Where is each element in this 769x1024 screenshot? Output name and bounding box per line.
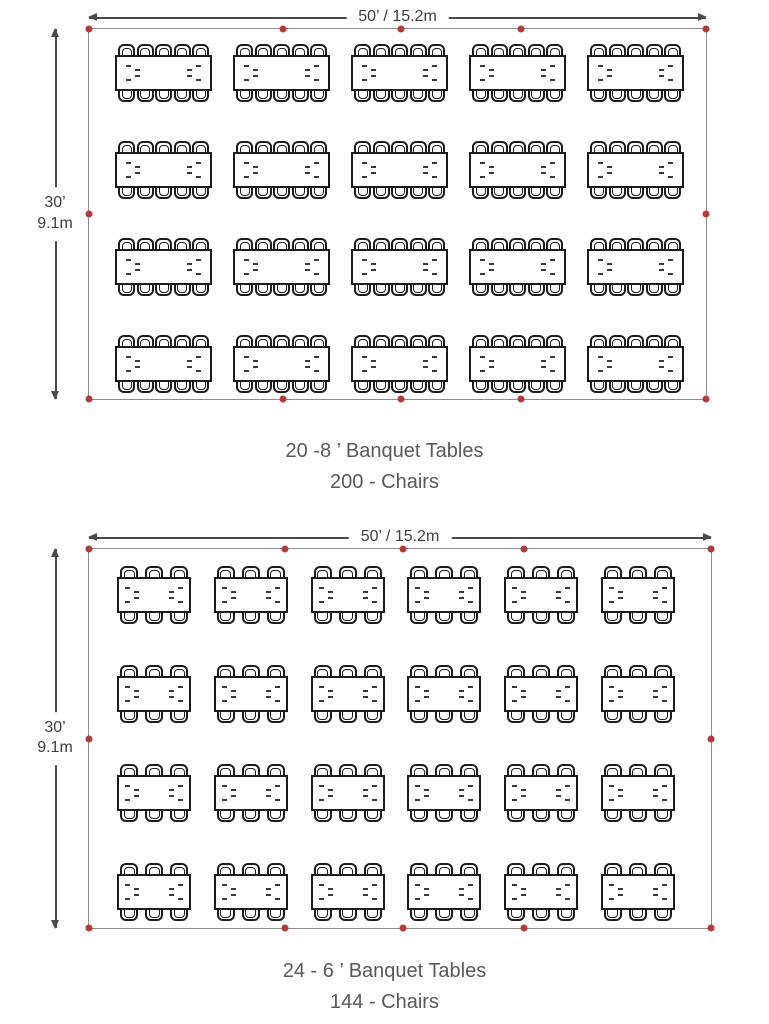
banquet-table-8ft bbox=[351, 335, 448, 393]
height-label-m: 9.1m bbox=[37, 740, 73, 757]
table-surface bbox=[351, 152, 448, 188]
banquet-table-8ft bbox=[587, 141, 684, 199]
place-setting-marks bbox=[457, 585, 473, 605]
stake-dot bbox=[400, 925, 407, 932]
table-row bbox=[115, 238, 684, 296]
place-setting-marks bbox=[554, 585, 570, 605]
place-setting-marks bbox=[415, 783, 431, 803]
place-setting-marks bbox=[264, 585, 280, 605]
table-surface bbox=[469, 346, 566, 382]
height-label-m: 9.1m bbox=[37, 215, 73, 232]
place-setting-marks bbox=[303, 257, 319, 277]
stake-dot bbox=[521, 546, 528, 553]
width-dimension-line: 50’ / 15.2m bbox=[88, 529, 712, 545]
arrow-right-icon bbox=[703, 533, 712, 541]
table-surface bbox=[469, 152, 566, 188]
table-surface bbox=[587, 55, 684, 91]
table-surface bbox=[233, 55, 330, 91]
table-row bbox=[117, 665, 675, 723]
place-setting-marks bbox=[361, 783, 377, 803]
place-setting-marks bbox=[657, 354, 673, 374]
place-setting-marks bbox=[126, 257, 142, 277]
table-surface bbox=[117, 676, 191, 712]
place-setting-marks bbox=[303, 63, 319, 83]
place-setting-marks bbox=[244, 63, 260, 83]
table-surface bbox=[351, 249, 448, 285]
place-setting-marks bbox=[512, 684, 528, 704]
place-setting-marks bbox=[185, 354, 201, 374]
banquet-table-8ft bbox=[115, 141, 212, 199]
banquet-table-8ft bbox=[351, 238, 448, 296]
tent-outline bbox=[88, 548, 712, 929]
place-setting-marks bbox=[415, 882, 431, 902]
table-surface bbox=[407, 874, 481, 910]
place-setting-marks bbox=[167, 882, 183, 902]
place-setting-marks bbox=[598, 257, 614, 277]
banquet-table-8ft bbox=[587, 335, 684, 393]
place-setting-marks bbox=[185, 63, 201, 83]
banquet-table-8ft bbox=[351, 141, 448, 199]
table-surface bbox=[117, 874, 191, 910]
table-surface bbox=[407, 775, 481, 811]
place-setting-marks bbox=[598, 160, 614, 180]
table-row bbox=[115, 44, 684, 102]
place-setting-marks bbox=[222, 783, 238, 803]
place-setting-marks bbox=[651, 684, 667, 704]
place-setting-marks bbox=[421, 354, 437, 374]
place-setting-marks bbox=[651, 783, 667, 803]
stake-dot bbox=[521, 925, 528, 932]
table-surface bbox=[214, 676, 288, 712]
table-surface bbox=[601, 676, 675, 712]
tent-outline bbox=[88, 28, 707, 400]
place-setting-marks bbox=[361, 684, 377, 704]
banquet-table-8ft bbox=[115, 44, 212, 102]
place-setting-marks bbox=[319, 882, 335, 902]
place-setting-marks bbox=[303, 160, 319, 180]
table-surface bbox=[311, 874, 385, 910]
place-setting-marks bbox=[651, 585, 667, 605]
place-setting-marks bbox=[598, 63, 614, 83]
place-setting-marks bbox=[421, 257, 437, 277]
table-surface bbox=[351, 55, 448, 91]
banquet-table-6ft bbox=[311, 863, 385, 921]
place-setting-marks bbox=[244, 160, 260, 180]
place-setting-marks bbox=[457, 783, 473, 803]
caption-chairs: 144 - Chairs bbox=[0, 987, 769, 1018]
stake-dot bbox=[400, 546, 407, 553]
floor-plan-page: 50’ / 15.2m 30’ 9.1m 20 -8 ’ Banquet Tab… bbox=[0, 0, 769, 1024]
stake-dot bbox=[86, 396, 93, 403]
caption-tables: 24 - 6 ’ Banquet Tables bbox=[0, 956, 769, 987]
place-setting-marks bbox=[126, 63, 142, 83]
table-surface bbox=[214, 874, 288, 910]
banquet-table-8ft bbox=[587, 44, 684, 102]
table-surface bbox=[601, 775, 675, 811]
banquet-table-8ft bbox=[469, 335, 566, 393]
banquet-table-6ft bbox=[407, 863, 481, 921]
banquet-table-6ft bbox=[214, 566, 288, 624]
place-setting-marks bbox=[362, 354, 378, 374]
height-label: 30’ 9.1m bbox=[35, 187, 75, 241]
place-setting-marks bbox=[185, 257, 201, 277]
stake-dot bbox=[86, 26, 93, 33]
place-setting-marks bbox=[539, 354, 555, 374]
place-setting-marks bbox=[125, 585, 141, 605]
place-setting-marks bbox=[657, 160, 673, 180]
place-setting-marks bbox=[512, 882, 528, 902]
place-setting-marks bbox=[362, 160, 378, 180]
place-setting-marks bbox=[319, 585, 335, 605]
banquet-table-8ft bbox=[233, 141, 330, 199]
place-setting-marks bbox=[512, 585, 528, 605]
table-row bbox=[117, 863, 675, 921]
place-setting-marks bbox=[361, 882, 377, 902]
table-surface bbox=[115, 346, 212, 382]
table-surface bbox=[469, 249, 566, 285]
table-surface bbox=[601, 874, 675, 910]
table-surface bbox=[504, 874, 578, 910]
stake-dot bbox=[397, 396, 404, 403]
place-setting-marks bbox=[480, 63, 496, 83]
table-surface bbox=[601, 577, 675, 613]
banquet-table-8ft bbox=[351, 44, 448, 102]
place-setting-marks bbox=[657, 63, 673, 83]
table-surface bbox=[351, 346, 448, 382]
stake-dot bbox=[703, 211, 710, 218]
place-setting-marks bbox=[480, 257, 496, 277]
place-setting-marks bbox=[185, 160, 201, 180]
table-surface bbox=[407, 676, 481, 712]
table-surface bbox=[504, 775, 578, 811]
table-surface bbox=[115, 152, 212, 188]
table-surface bbox=[311, 577, 385, 613]
place-setting-marks bbox=[421, 160, 437, 180]
banquet-table-8ft bbox=[587, 238, 684, 296]
tables-grid bbox=[117, 566, 675, 921]
table-surface bbox=[311, 676, 385, 712]
stake-dot bbox=[703, 26, 710, 33]
place-setting-marks bbox=[319, 783, 335, 803]
table-surface bbox=[233, 249, 330, 285]
place-setting-marks bbox=[167, 684, 183, 704]
place-setting-marks bbox=[457, 882, 473, 902]
place-setting-marks bbox=[264, 684, 280, 704]
table-surface bbox=[214, 775, 288, 811]
table-row bbox=[115, 141, 684, 199]
place-setting-marks bbox=[609, 783, 625, 803]
banquet-table-8ft bbox=[469, 44, 566, 102]
place-setting-marks bbox=[480, 160, 496, 180]
place-setting-marks bbox=[125, 882, 141, 902]
place-setting-marks bbox=[609, 882, 625, 902]
place-setting-marks bbox=[126, 354, 142, 374]
height-dimension-line: 30’ 9.1m bbox=[47, 548, 63, 929]
stake-dot bbox=[281, 925, 288, 932]
table-row bbox=[117, 764, 675, 822]
place-setting-marks bbox=[415, 684, 431, 704]
table-surface bbox=[587, 346, 684, 382]
banquet-table-8ft bbox=[233, 238, 330, 296]
stake-dot bbox=[703, 396, 710, 403]
banquet-table-8ft bbox=[469, 141, 566, 199]
place-setting-marks bbox=[361, 585, 377, 605]
table-surface bbox=[504, 676, 578, 712]
arrow-up-icon bbox=[51, 548, 59, 557]
banquet-table-6ft bbox=[311, 665, 385, 723]
table-row bbox=[115, 335, 684, 393]
table-surface bbox=[115, 249, 212, 285]
place-setting-marks bbox=[167, 783, 183, 803]
arrow-down-icon bbox=[51, 920, 59, 929]
place-setting-marks bbox=[512, 783, 528, 803]
banquet-table-6ft bbox=[117, 566, 191, 624]
caption-6ft: 24 - 6 ’ Banquet Tables 144 - Chairs bbox=[0, 956, 769, 1018]
place-setting-marks bbox=[362, 63, 378, 83]
banquet-table-6ft bbox=[504, 566, 578, 624]
banquet-table-6ft bbox=[117, 863, 191, 921]
table-surface bbox=[115, 55, 212, 91]
table-row bbox=[117, 566, 675, 624]
table-surface bbox=[117, 775, 191, 811]
place-setting-marks bbox=[554, 684, 570, 704]
stake-dot bbox=[517, 396, 524, 403]
place-setting-marks bbox=[319, 684, 335, 704]
banquet-table-6ft bbox=[117, 665, 191, 723]
place-setting-marks bbox=[126, 160, 142, 180]
banquet-table-6ft bbox=[504, 764, 578, 822]
banquet-table-8ft bbox=[469, 238, 566, 296]
place-setting-marks bbox=[651, 882, 667, 902]
banquet-table-8ft bbox=[115, 238, 212, 296]
place-setting-marks bbox=[244, 354, 260, 374]
place-setting-marks bbox=[222, 585, 238, 605]
place-setting-marks bbox=[222, 882, 238, 902]
banquet-table-6ft bbox=[601, 764, 675, 822]
arrow-left-icon bbox=[88, 533, 97, 541]
place-setting-marks bbox=[657, 257, 673, 277]
place-setting-marks bbox=[244, 257, 260, 277]
table-surface bbox=[233, 152, 330, 188]
banquet-table-6ft bbox=[601, 566, 675, 624]
place-setting-marks bbox=[264, 882, 280, 902]
place-setting-marks bbox=[539, 257, 555, 277]
banquet-table-8ft bbox=[233, 335, 330, 393]
stake-dot bbox=[708, 925, 715, 932]
place-setting-marks bbox=[598, 354, 614, 374]
stake-dot bbox=[517, 26, 524, 33]
banquet-table-6ft bbox=[311, 566, 385, 624]
stake-dot bbox=[86, 925, 93, 932]
place-setting-marks bbox=[264, 783, 280, 803]
place-setting-marks bbox=[539, 160, 555, 180]
place-setting-marks bbox=[362, 257, 378, 277]
place-setting-marks bbox=[457, 684, 473, 704]
banquet-table-6ft bbox=[601, 665, 675, 723]
place-setting-marks bbox=[167, 585, 183, 605]
banquet-table-6ft bbox=[214, 764, 288, 822]
stake-dot bbox=[86, 546, 93, 553]
width-label: 50’ / 15.2m bbox=[346, 8, 449, 26]
table-surface bbox=[214, 577, 288, 613]
place-setting-marks bbox=[222, 684, 238, 704]
stake-dot bbox=[280, 396, 287, 403]
banquet-table-8ft bbox=[233, 44, 330, 102]
table-surface bbox=[311, 775, 385, 811]
place-setting-marks bbox=[303, 354, 319, 374]
place-setting-marks bbox=[421, 63, 437, 83]
place-setting-marks bbox=[609, 684, 625, 704]
width-label: 50’ / 15.2m bbox=[349, 528, 452, 546]
table-surface bbox=[117, 577, 191, 613]
banquet-table-6ft bbox=[601, 863, 675, 921]
place-setting-marks bbox=[609, 585, 625, 605]
banquet-table-6ft bbox=[117, 764, 191, 822]
banquet-table-6ft bbox=[407, 764, 481, 822]
banquet-table-6ft bbox=[311, 764, 385, 822]
place-setting-marks bbox=[480, 354, 496, 374]
height-label-ft: 30’ bbox=[44, 719, 65, 736]
table-surface bbox=[469, 55, 566, 91]
stake-dot bbox=[708, 735, 715, 742]
banquet-table-6ft bbox=[407, 566, 481, 624]
place-setting-marks bbox=[539, 63, 555, 83]
tables-grid bbox=[115, 44, 684, 393]
table-surface bbox=[587, 249, 684, 285]
stake-dot bbox=[280, 26, 287, 33]
banquet-table-6ft bbox=[214, 665, 288, 723]
place-setting-marks bbox=[554, 882, 570, 902]
stake-dot bbox=[86, 735, 93, 742]
stake-dot bbox=[281, 546, 288, 553]
place-setting-marks bbox=[125, 783, 141, 803]
stake-dot bbox=[708, 546, 715, 553]
table-surface bbox=[233, 346, 330, 382]
stake-dot bbox=[397, 26, 404, 33]
banquet-table-6ft bbox=[407, 665, 481, 723]
banquet-table-8ft bbox=[115, 335, 212, 393]
stake-dot bbox=[86, 211, 93, 218]
height-label: 30’ 9.1m bbox=[35, 712, 75, 766]
banquet-table-6ft bbox=[504, 665, 578, 723]
place-setting-marks bbox=[554, 783, 570, 803]
height-label-ft: 30’ bbox=[44, 194, 65, 211]
banquet-table-6ft bbox=[504, 863, 578, 921]
place-setting-marks bbox=[125, 684, 141, 704]
table-surface bbox=[587, 152, 684, 188]
table-surface bbox=[407, 577, 481, 613]
table-surface bbox=[504, 577, 578, 613]
banquet-table-6ft bbox=[214, 863, 288, 921]
place-setting-marks bbox=[415, 585, 431, 605]
